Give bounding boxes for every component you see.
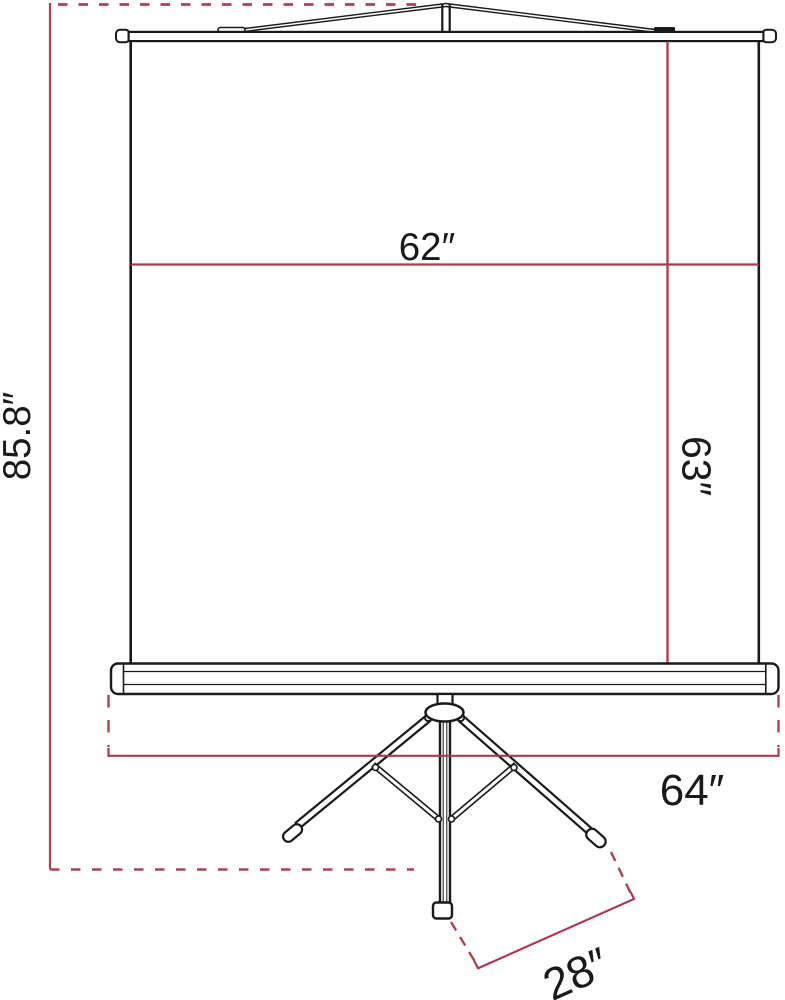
svg-text:63″: 63″ [674,436,720,496]
svg-text:64″: 64″ [660,766,725,815]
svg-text:85.8″: 85.8″ [0,392,39,481]
svg-text:62″: 62″ [399,226,455,269]
